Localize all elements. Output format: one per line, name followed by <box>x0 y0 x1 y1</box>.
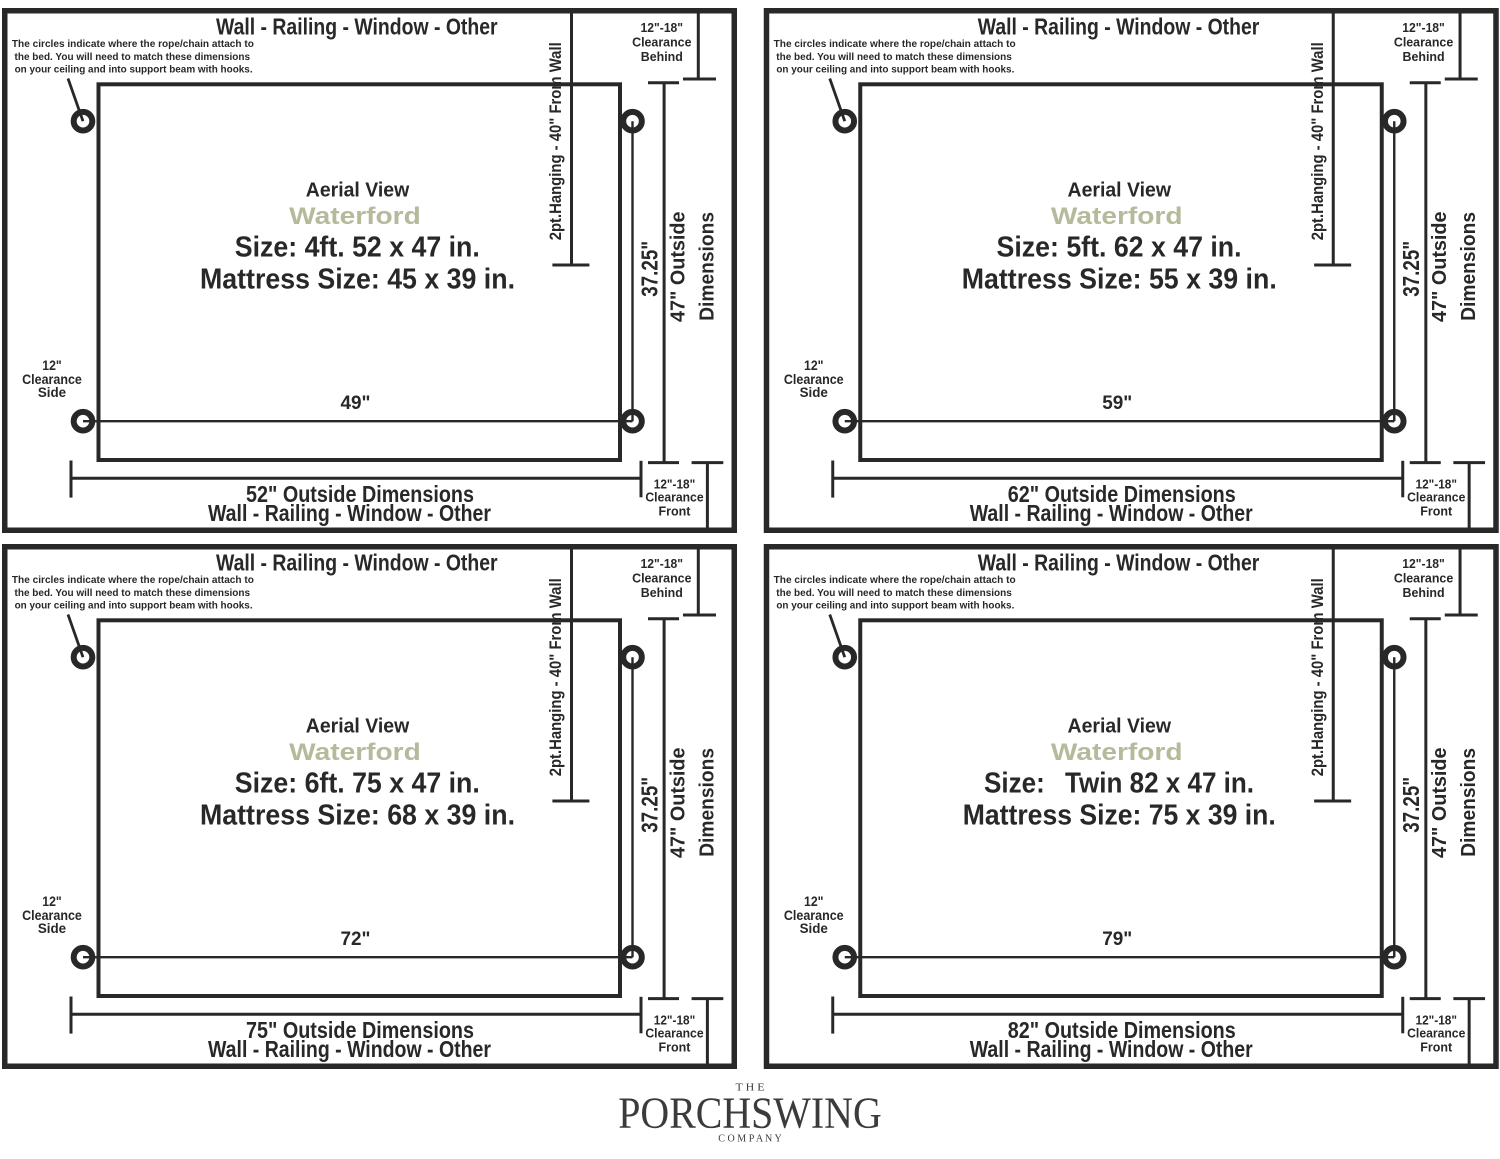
svg-text:Waterford: Waterford <box>289 203 421 230</box>
svg-text:12"-18": 12"-18" <box>1402 21 1445 35</box>
svg-text:37.25": 37.25" <box>636 776 662 832</box>
svg-text:Wall - Railing - Window - Othe: Wall - Railing - Window - Other <box>208 1036 491 1062</box>
svg-text:the bed. You will need to matc: the bed. You will need to match these di… <box>15 52 251 63</box>
svg-text:12": 12" <box>804 894 824 909</box>
svg-text:12"-18": 12"-18" <box>1402 557 1445 571</box>
svg-text:Clearance: Clearance <box>1394 36 1453 50</box>
svg-text:12": 12" <box>42 894 62 909</box>
svg-text:Wall - Railing - Window - Othe: Wall - Railing - Window - Other <box>978 14 1260 40</box>
svg-text:Clearance: Clearance <box>632 571 691 585</box>
svg-text:Wall - Railing - Window - Othe: Wall - Railing - Window - Other <box>970 500 1253 526</box>
svg-text:Behind: Behind <box>1403 50 1445 64</box>
svg-text:Behind: Behind <box>1403 585 1445 599</box>
svg-text:Clearance: Clearance <box>1407 491 1465 505</box>
svg-text:the bed. You will need to matc: the bed. You will need to match these di… <box>776 587 1012 598</box>
svg-text:on your ceiling and into suppo: on your ceiling and into support beam wi… <box>776 600 1014 611</box>
svg-text:37.25": 37.25" <box>1398 241 1424 297</box>
svg-text:Clearance: Clearance <box>1394 571 1453 585</box>
svg-text:79": 79" <box>1102 929 1132 950</box>
svg-text:The circles indicate where the: The circles indicate where the rope/chai… <box>774 575 1016 586</box>
svg-text:47" Outside: 47" Outside <box>1428 747 1451 858</box>
svg-text:Dimensions: Dimensions <box>695 212 718 321</box>
svg-text:Dimensions: Dimensions <box>1457 748 1480 857</box>
svg-text:37.25": 37.25" <box>636 241 662 297</box>
svg-text:Dimensions: Dimensions <box>1457 212 1480 321</box>
svg-text:12": 12" <box>804 358 824 373</box>
svg-text:Mattress Size: 75 x 39 in.: Mattress Size: 75 x 39 in. <box>963 799 1276 831</box>
svg-text:2pt.Hanging - 40" From Wall: 2pt.Hanging - 40" From Wall <box>1309 578 1327 776</box>
svg-text:Aerial View: Aerial View <box>1068 714 1172 737</box>
svg-text:2pt.Hanging - 40" From Wall: 2pt.Hanging - 40" From Wall <box>547 578 565 776</box>
svg-text:Aerial View: Aerial View <box>306 179 410 202</box>
svg-text:12": 12" <box>42 358 62 373</box>
svg-text:Front: Front <box>659 1040 692 1054</box>
svg-text:12"-18": 12"-18" <box>641 21 684 35</box>
svg-text:Mattress Size: 68 x 39 in.: Mattress Size: 68 x 39 in. <box>200 799 515 831</box>
svg-text:Waterford: Waterford <box>1051 203 1183 230</box>
svg-text:Wall - Railing - Window - Othe: Wall - Railing - Window - Other <box>208 500 491 526</box>
svg-text:Front: Front <box>1420 505 1453 519</box>
svg-text:The circles indicate where the: The circles indicate where the rope/chai… <box>12 39 254 50</box>
svg-text:Size: 4ft. 52 x 47 in.: Size: 4ft. 52 x 47 in. <box>235 232 480 264</box>
svg-text:Aerial View: Aerial View <box>1068 179 1172 202</box>
svg-text:47" Outside: 47" Outside <box>666 212 689 323</box>
svg-text:12"-18": 12"-18" <box>1416 1013 1458 1027</box>
svg-text:Behind: Behind <box>641 50 683 64</box>
svg-text:Clearance: Clearance <box>1407 1026 1465 1040</box>
svg-text:47" Outside: 47" Outside <box>1428 212 1451 323</box>
svg-text:Clearance: Clearance <box>645 1026 703 1040</box>
svg-text:2pt.Hanging - 40" From Wall: 2pt.Hanging - 40" From Wall <box>547 42 565 240</box>
svg-text:Waterford: Waterford <box>289 739 421 766</box>
svg-text:Behind: Behind <box>641 585 683 599</box>
svg-text:on your ceiling and into suppo: on your ceiling and into support beam wi… <box>776 65 1014 76</box>
svg-text:Side: Side <box>800 921 829 936</box>
svg-text:Wall - Railing - Window - Othe: Wall - Railing - Window - Other <box>978 549 1260 575</box>
svg-text:Side: Side <box>38 385 67 400</box>
svg-text:on your ceiling and into suppo: on your ceiling and into support beam wi… <box>15 600 253 611</box>
svg-text:The circles indicate where the: The circles indicate where the rope/chai… <box>12 575 254 586</box>
svg-text:12"-18": 12"-18" <box>641 557 684 571</box>
svg-text:PORCHSWING: PORCHSWING <box>618 1087 882 1137</box>
svg-text:Size: 5ft. 62 x 47 in.: Size: 5ft. 62 x 47 in. <box>997 232 1242 264</box>
svg-text:47" Outside: 47" Outside <box>666 747 689 858</box>
svg-text:C O M P A N Y: C O M P A N Y <box>718 1133 781 1144</box>
svg-text:Aerial View: Aerial View <box>306 714 410 737</box>
svg-text:the bed. You will need to matc: the bed. You will need to match these di… <box>15 587 251 598</box>
svg-text:Mattress Size: 55 x 39 in.: Mattress Size: 55 x 39 in. <box>962 263 1277 295</box>
svg-text:Size: 6ft. 75 x 47 in.: Size: 6ft. 75 x 47 in. <box>235 767 480 799</box>
svg-text:The circles indicate where the: The circles indicate where the rope/chai… <box>774 39 1016 50</box>
svg-text:72": 72" <box>341 929 371 950</box>
svg-text:Dimensions: Dimensions <box>695 748 718 857</box>
svg-text:Size: Twin 82 x 47 in.: Size: Twin 82 x 47 in. <box>984 767 1254 799</box>
svg-text:49": 49" <box>341 393 371 414</box>
svg-text:37.25": 37.25" <box>1398 776 1424 832</box>
svg-text:the bed. You will need to matc: the bed. You will need to match these di… <box>776 52 1012 63</box>
svg-text:Clearance: Clearance <box>632 36 691 50</box>
svg-text:Front: Front <box>1420 1040 1453 1054</box>
svg-text:on your ceiling and into suppo: on your ceiling and into support beam wi… <box>15 65 253 76</box>
svg-text:Side: Side <box>38 921 67 936</box>
svg-text:59": 59" <box>1102 393 1132 414</box>
svg-text:12"-18": 12"-18" <box>654 1013 696 1027</box>
svg-text:2pt.Hanging - 40" From Wall: 2pt.Hanging - 40" From Wall <box>1309 42 1327 240</box>
svg-text:Clearance: Clearance <box>645 491 703 505</box>
svg-text:Wall - Railing - Window - Othe: Wall - Railing - Window - Other <box>970 1036 1253 1062</box>
svg-text:Wall - Railing - Window - Othe: Wall - Railing - Window - Other <box>216 14 498 40</box>
svg-text:12"-18": 12"-18" <box>1416 477 1458 491</box>
svg-text:Front: Front <box>659 505 692 519</box>
svg-text:Side: Side <box>800 385 829 400</box>
svg-text:12"-18": 12"-18" <box>654 477 696 491</box>
svg-text:Wall - Railing - Window - Othe: Wall - Railing - Window - Other <box>216 549 498 575</box>
svg-text:Waterford: Waterford <box>1051 739 1183 766</box>
svg-text:Mattress Size: 45 x 39 in.: Mattress Size: 45 x 39 in. <box>200 263 515 295</box>
